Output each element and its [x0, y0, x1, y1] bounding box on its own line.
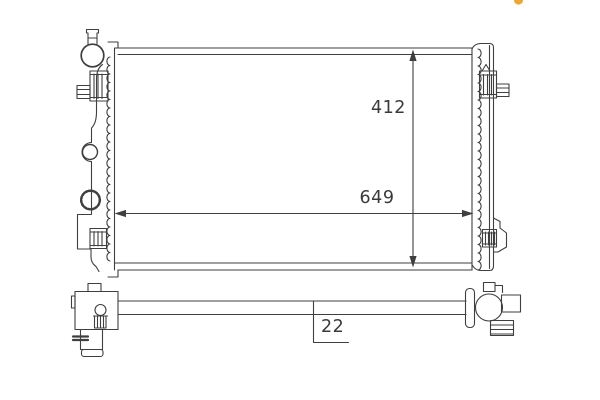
side-left-assembly-icon: [72, 284, 119, 357]
side-core-bar: [118, 301, 466, 315]
upper-mounting-boss-icon: [83, 145, 98, 160]
right-tank: [472, 44, 509, 271]
product-drawing-canvas: 412 649 22: [0, 0, 600, 400]
dimension-annotations: [115, 50, 474, 343]
lower-hose-connector-icon: [90, 229, 107, 249]
height-dimension-line: [409, 50, 416, 268]
side-right-assembly-icon: [466, 283, 521, 336]
filler-cap-icon: [87, 30, 99, 45]
logo-fragment-icon: [514, 0, 523, 5]
upper-hose-connector-icon: [77, 71, 108, 101]
arrowhead-up-icon: [409, 50, 416, 62]
left-tank: [77, 30, 108, 272]
side-view: [72, 283, 521, 357]
pipe-boss-icon: [81, 191, 100, 210]
arrowhead-down-icon: [409, 256, 416, 268]
right-upper-bracket-icon: [480, 65, 510, 99]
arrowhead-left-icon: [115, 210, 127, 217]
right-lower-bracket-icon: [483, 218, 507, 252]
dim-height-label: 412: [371, 100, 405, 118]
dim-width-label: 649: [356, 190, 398, 208]
filler-neck-icon: [81, 44, 104, 67]
dim-thickness-label: 22: [321, 319, 353, 337]
width-dimension-line: [115, 210, 474, 217]
radiator-core-outline: [108, 42, 472, 277]
radiator-line-art: [0, 0, 600, 400]
front-view: [77, 30, 509, 278]
